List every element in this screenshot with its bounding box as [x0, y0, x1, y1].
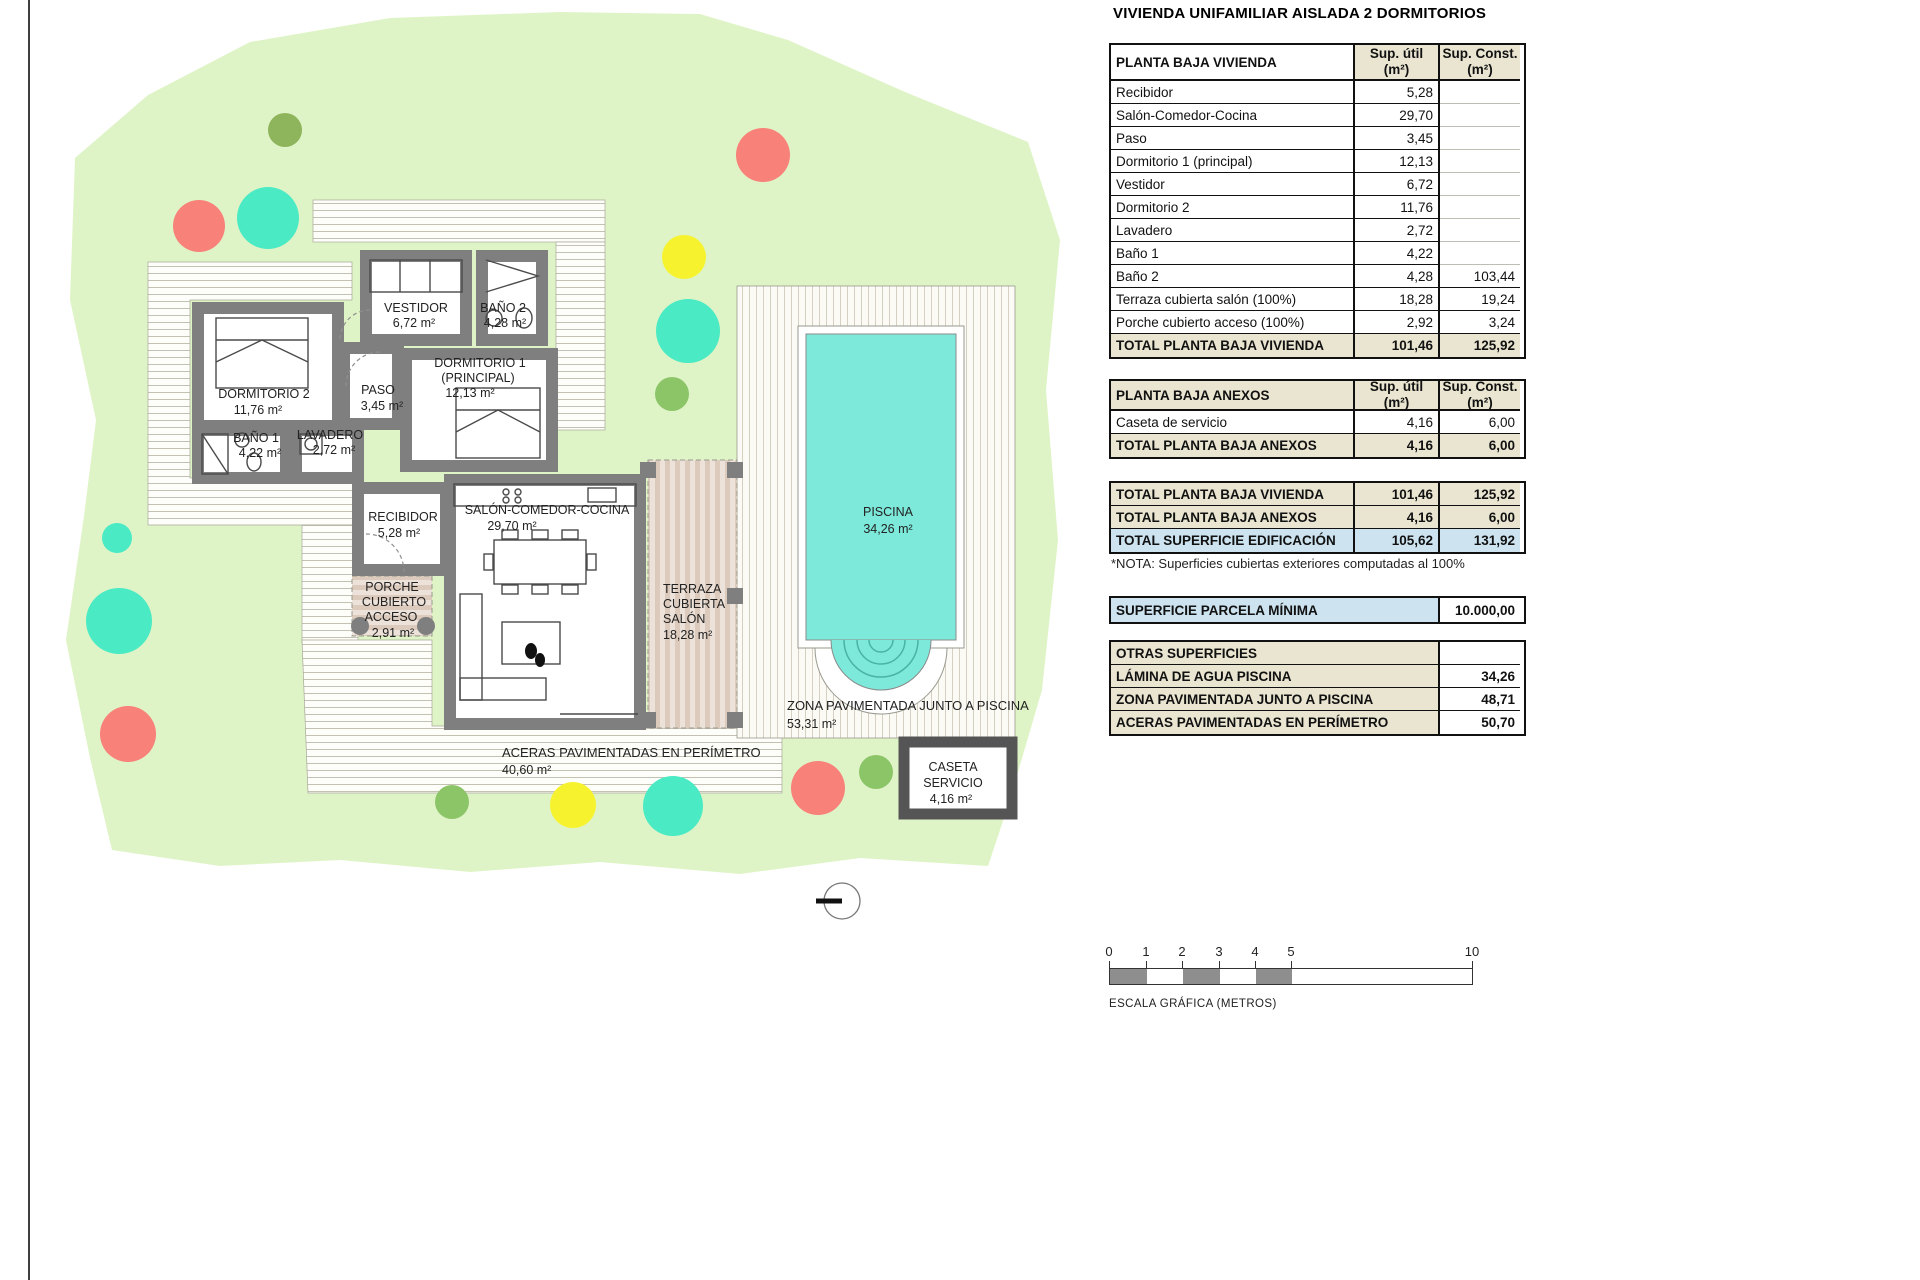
label-bano1: BAÑO 1: [233, 431, 279, 445]
pool: [798, 326, 964, 714]
label-dormitorio1: DORMITORIO 1: [434, 356, 525, 370]
table-row: LÁMINA DE AGUA PISCINA 34,26: [1111, 665, 1524, 688]
svg-text:4,28 m²: 4,28 m²: [484, 316, 526, 330]
svg-text:4,16 m²: 4,16 m²: [930, 792, 972, 806]
label-bano2: BAÑO 2: [480, 301, 526, 315]
svg-text:5,28 m²: 5,28 m²: [378, 526, 420, 540]
label-zona: ZONA PAVIMENTADA JUNTO A PISCINA: [787, 698, 1029, 713]
table-total-row: TOTAL PLANTA BAJA ANEXOS 4,16 6,00: [1111, 506, 1524, 529]
tree-circle: [102, 523, 132, 553]
svg-text:3,45 m²: 3,45 m²: [361, 399, 403, 413]
table-row: Porche cubierto acceso (100%) 2,92 3,24: [1111, 311, 1524, 334]
scale-tick-label: 4: [1251, 944, 1258, 959]
svg-text:CUBIERTA: CUBIERTA: [663, 597, 726, 611]
column-header: PLANTA BAJA VIVIENDA: [1111, 45, 1355, 81]
column-header: Sup. Const.(m²): [1440, 381, 1520, 411]
column-header: Sup. útil(m²): [1355, 45, 1440, 81]
pool-water: [806, 334, 956, 640]
svg-text:CUBIERTO: CUBIERTO: [362, 595, 426, 609]
tree-circle: [550, 782, 596, 828]
label-aceras: ACERAS PAVIMENTADAS EN PERÍMETRO: [502, 745, 761, 760]
tree-circle: [662, 235, 706, 279]
table-parcela-minima: SUPERFICIE PARCELA MÍNIMA 10.000,00: [1109, 596, 1526, 624]
svg-text:11,76 m²: 11,76 m²: [234, 403, 282, 417]
label-paso: PASO: [361, 383, 395, 397]
scale-tick-label: 1: [1142, 944, 1149, 959]
svg-text:34,26 m²: 34,26 m²: [863, 522, 912, 536]
column-header: Sup. Const.(m²): [1440, 45, 1520, 81]
table-totales: TOTAL PLANTA BAJA VIVIENDA 101,46 125,92…: [1109, 481, 1526, 554]
column-header: Sup. útil(m²): [1355, 381, 1440, 411]
svg-text:2,72 m²: 2,72 m²: [313, 443, 355, 457]
table-row: Caseta de servicio 4,16 6,00: [1111, 411, 1524, 434]
scale-tick-label: 3: [1215, 944, 1222, 959]
tree-circle: [268, 113, 302, 147]
table-row: Baño 2 4,28 103,44: [1111, 265, 1524, 288]
tree-circle: [173, 200, 225, 252]
label-salon: SALÓN-COMEDOR-COCINA: [465, 502, 630, 517]
table-total-row: TOTAL PLANTA BAJA VIVIENDA 101,46 125,92: [1111, 483, 1524, 506]
table-planta-baja-vivienda: PLANTA BAJA VIVIENDA Sup. útil(m²) Sup. …: [1109, 43, 1526, 359]
note-text: *NOTA: Superficies cubiertas exteriores …: [1111, 556, 1465, 571]
scale-tick-label: 5: [1287, 944, 1294, 959]
table-row: ACERAS PAVIMENTADAS EN PERÍMETRO 50,70: [1111, 711, 1524, 734]
label-lavadero: LAVADERO: [297, 428, 364, 442]
page-title: VIVIENDA UNIFAMILIAR AISLADA 2 DORMITORI…: [1113, 5, 1486, 22]
table-header-row: PLANTA BAJA VIVIENDA Sup. útil(m²) Sup. …: [1111, 45, 1524, 81]
tree-circle: [86, 588, 152, 654]
table-row: Baño 1 4,22: [1111, 242, 1524, 265]
page: { "page": { "title": "VIVIENDA UNIFAMILI…: [0, 0, 1920, 1280]
table-row: ZONA PAVIMENTADA JUNTO A PISCINA 48,71: [1111, 688, 1524, 711]
label-caseta: CASETA: [928, 760, 978, 774]
tree-circle: [100, 706, 156, 762]
svg-text:6,72 m²: 6,72 m²: [393, 316, 435, 330]
svg-text:12,13 m²: 12,13 m²: [445, 386, 494, 400]
column-header: PLANTA BAJA ANEXOS: [1111, 381, 1355, 411]
tree-circle: [237, 187, 299, 249]
table-row: Lavadero 2,72: [1111, 219, 1524, 242]
table-row: Dormitorio 2 11,76: [1111, 196, 1524, 219]
tree-circle: [736, 128, 790, 182]
table-total-row: TOTAL SUPERFICIE EDIFICACIÓN 105,62 131,…: [1111, 529, 1524, 552]
svg-text:(PRINCIPAL): (PRINCIPAL): [441, 371, 514, 385]
tree-circle: [655, 377, 689, 411]
label-dormitorio2: DORMITORIO 2: [218, 387, 309, 401]
tree-circle: [656, 299, 720, 363]
svg-text:2,91 m²: 2,91 m²: [372, 626, 414, 640]
svg-text:18,28 m²: 18,28 m²: [663, 628, 712, 642]
svg-text:SERVICIO: SERVICIO: [923, 776, 983, 790]
table-planta-baja-anexos: PLANTA BAJA ANEXOS Sup. útil(m²) Sup. Co…: [1109, 379, 1526, 459]
label-porche: PORCHE: [365, 580, 418, 594]
label-recibidor: RECIBIDOR: [368, 510, 437, 524]
svg-text:SALÓN: SALÓN: [663, 611, 705, 626]
table-row: Vestidor 6,72: [1111, 173, 1524, 196]
table-row: Salón-Comedor-Cocina 29,70: [1111, 104, 1524, 127]
scale-tick-label: 2: [1178, 944, 1185, 959]
site-plan: VESTIDOR 6,72 m² BAÑO 2 4,28 m² DORMITOR…: [0, 0, 1080, 1280]
table-row: Terraza cubierta salón (100%) 18,28 19,2…: [1111, 288, 1524, 311]
svg-text:29,70 m²: 29,70 m²: [487, 519, 536, 533]
scale-tick-label: 0: [1105, 944, 1112, 959]
label-terraza: TERRAZA: [663, 582, 722, 596]
table-otras-superficies: OTRAS SUPERFICIES LÁMINA DE AGUA PISCINA…: [1109, 640, 1526, 736]
scale-bar-label: ESCALA GRÁFICA (METROS): [1109, 998, 1277, 1010]
svg-text:ACCESO: ACCESO: [365, 610, 418, 624]
table-header-row: PLANTA BAJA ANEXOS Sup. útil(m²) Sup. Co…: [1111, 381, 1524, 411]
tree-circle: [435, 785, 469, 819]
porche-column: [417, 617, 435, 635]
label-vestidor: VESTIDOR: [384, 301, 448, 315]
table-row: Paso 3,45: [1111, 127, 1524, 150]
table-row: Dormitorio 1 (principal) 12,13: [1111, 150, 1524, 173]
benchmark-symbol: [816, 883, 860, 919]
tree-circle: [859, 755, 893, 789]
table-total-row: TOTAL PLANTA BAJA ANEXOS 4,16 6,00: [1111, 434, 1524, 457]
svg-text:53,31 m²: 53,31 m²: [787, 717, 836, 731]
tree-circle: [791, 761, 845, 815]
table-total-row: TOTAL PLANTA BAJA VIVIENDA 101,46 125,92: [1111, 334, 1524, 357]
table-header-row: OTRAS SUPERFICIES: [1111, 642, 1524, 665]
label-piscina: PISCINA: [863, 505, 914, 519]
svg-text:4,22 m²: 4,22 m²: [239, 446, 281, 460]
svg-text:40,60 m²: 40,60 m²: [502, 763, 551, 777]
scale-tick-label: 10: [1465, 944, 1479, 959]
tree-circle: [643, 776, 703, 836]
table-row: Recibidor 5,28: [1111, 81, 1524, 104]
